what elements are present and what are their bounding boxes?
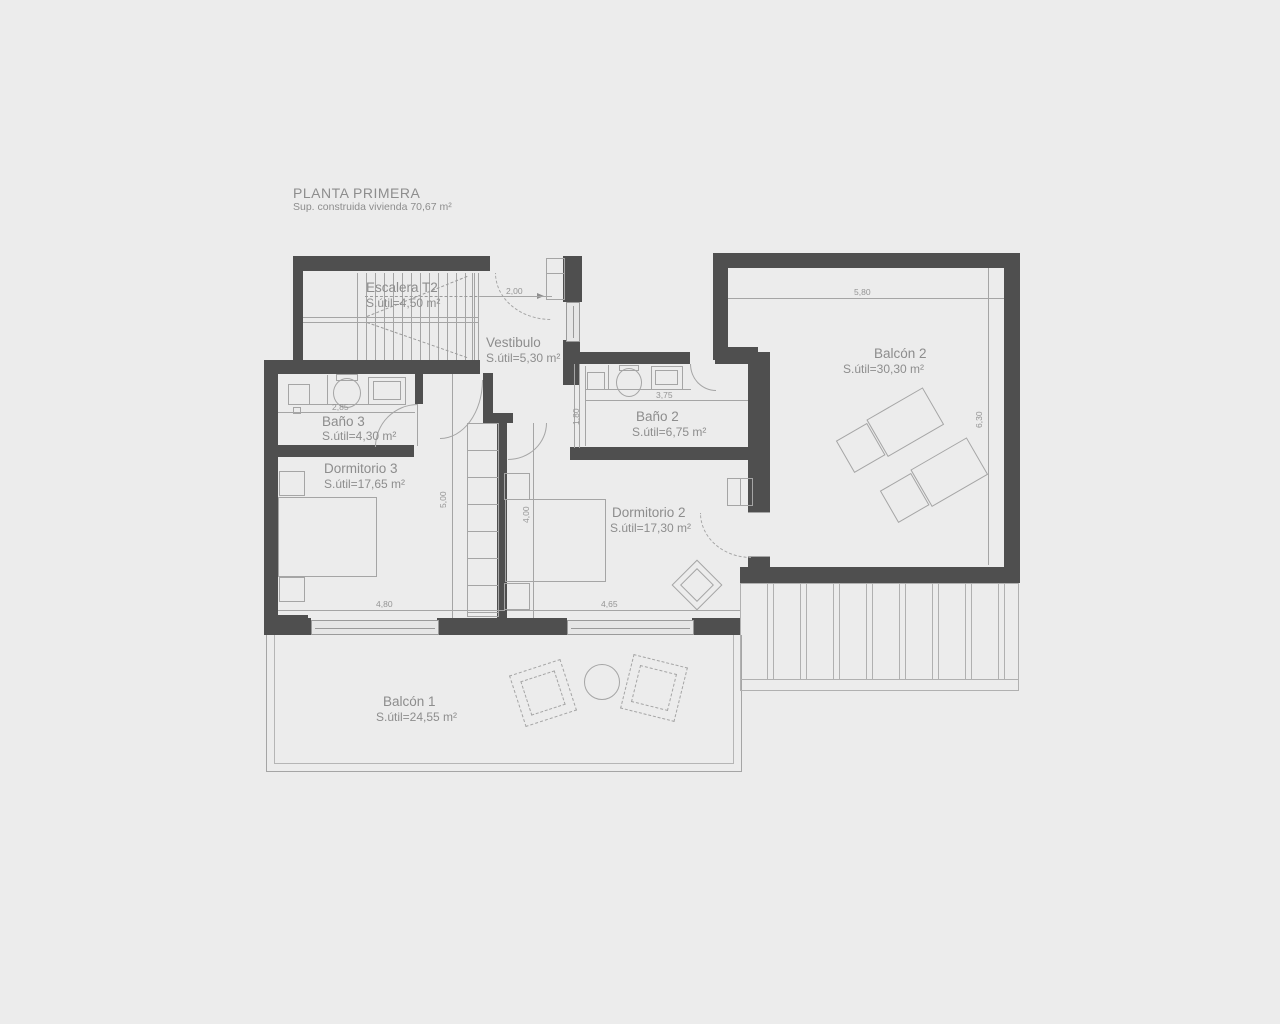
dim-bano3-width: 2,85 [332, 402, 349, 412]
room-area-escalera: S.útil=4,50 m² [366, 296, 440, 310]
wall-segment [713, 347, 758, 360]
dim-balcon2-depth: 6,30 [974, 411, 984, 428]
dim-line [988, 268, 989, 565]
dim-dormitorio3-depth: 5,00 [438, 491, 448, 508]
room-area-dormitorio3: S.útil=17,65 m² [324, 477, 405, 491]
door-leaf [417, 404, 418, 446]
room-label-dormitorio3: Dormitorio 3 [324, 461, 398, 476]
toilet-tank [336, 374, 358, 381]
room-label-bano2: Baño 2 [636, 409, 679, 424]
dim-line [278, 412, 415, 413]
dim-line [507, 610, 740, 611]
dim-line [585, 400, 748, 401]
room-area-dormitorio2: S.útil=17,30 m² [610, 521, 691, 535]
room-area-balcon1: S.útil=24,55 m² [376, 710, 457, 724]
dim-line [728, 298, 1004, 299]
room-area-balcon2: S.útil=30,30 m² [843, 362, 924, 376]
sink [288, 384, 310, 405]
counter-divider [608, 365, 609, 389]
room-label-vestibulo: Vestibulo [486, 335, 541, 350]
stair-landing-line [303, 322, 478, 323]
window [311, 620, 439, 635]
dim-dormitorio2-width: 4,65 [601, 599, 618, 609]
cabinet-divider [547, 273, 564, 274]
dim-line [585, 366, 586, 446]
closet [727, 478, 753, 506]
plan-title: PLANTA PRIMERA [293, 185, 420, 201]
balcony1-railing-inner [274, 635, 734, 764]
window [567, 620, 694, 635]
stair-edge-line [472, 273, 473, 360]
partition-line [579, 364, 580, 448]
dim-line [533, 423, 534, 618]
dim-bano2-width: 3,75 [656, 390, 673, 400]
door-arc-balcon2 [700, 513, 751, 558]
nightstand [279, 471, 305, 496]
wall-segment [713, 253, 728, 353]
partition-line [574, 364, 575, 448]
nightstand [504, 473, 530, 500]
entry-cabinet [546, 258, 565, 300]
nightstand [504, 583, 530, 610]
dim-balcon2-width: 5,80 [854, 287, 871, 297]
plan-subtitle: Sup. construida vivienda 70,67 m² [293, 201, 452, 213]
room-label-balcon2: Balcón 2 [874, 346, 927, 361]
counter-divider [327, 375, 328, 404]
door-arc-bano2 [690, 364, 716, 391]
sink [587, 372, 605, 390]
wall-segment [415, 374, 423, 404]
dim-line [278, 610, 505, 611]
vanity-basin [373, 381, 401, 400]
vanity-basin [655, 370, 678, 385]
closet-divider [740, 479, 741, 505]
dim-bano2-depth: 1,80 [571, 408, 581, 425]
room-label-bano3: Baño 3 [322, 414, 365, 429]
wall-segment [565, 352, 690, 364]
wall-segment [563, 256, 582, 302]
room-label-escalera: Escalera T2 [366, 280, 438, 295]
dim-line [480, 296, 552, 297]
dim-vestibulo-width: 2,00 [506, 286, 523, 296]
room-label-balcon1: Balcón 1 [383, 694, 436, 709]
wall-segment [713, 253, 1020, 268]
window-glazing [315, 628, 435, 629]
dim-dormitorio2-depth: 4,00 [521, 506, 531, 523]
wall-segment [264, 618, 311, 635]
wall-segment [293, 256, 490, 271]
nightstand [279, 577, 305, 602]
door-jamb-line [748, 512, 770, 513]
room-label-dormitorio2: Dormitorio 2 [612, 505, 686, 520]
dim-line [452, 374, 453, 618]
wall-segment [570, 447, 748, 460]
window-glazing [573, 306, 574, 338]
room-area-vestibulo: S.útil=5,30 m² [486, 351, 560, 365]
pergola-edge [740, 678, 1019, 691]
room-area-bano3: S.útil=4,30 m² [322, 429, 396, 443]
wall-segment [1004, 253, 1020, 583]
wall-segment [483, 413, 513, 423]
room-area-bano2: S.útil=6,75 m² [632, 425, 706, 439]
bed-dormitorio3 [278, 497, 377, 577]
toilet-tank [619, 365, 639, 371]
wall-segment [264, 374, 278, 615]
toilet [616, 368, 642, 397]
window-glazing [571, 628, 690, 629]
wall-segment [740, 567, 1004, 583]
floor-plan: PLANTA PRIMERA Sup. construida vivienda … [0, 0, 1280, 1024]
wall-segment [293, 271, 303, 361]
counter-edge [585, 389, 691, 390]
corner-chair-inner [680, 568, 714, 602]
wall-segment [437, 618, 567, 635]
door-arc-dormitorio2 [508, 423, 547, 460]
corner-chair [672, 560, 723, 611]
stair-landing-line [303, 317, 478, 318]
door-jamb-line [748, 556, 770, 557]
dim-dormitorio3-width: 4,80 [376, 599, 393, 609]
stair-edge-line [478, 273, 479, 360]
wall-segment [264, 360, 480, 374]
wall-segment [692, 618, 740, 635]
window [566, 302, 580, 342]
pergola-louvers [740, 583, 1019, 680]
wardrobe [467, 423, 499, 617]
